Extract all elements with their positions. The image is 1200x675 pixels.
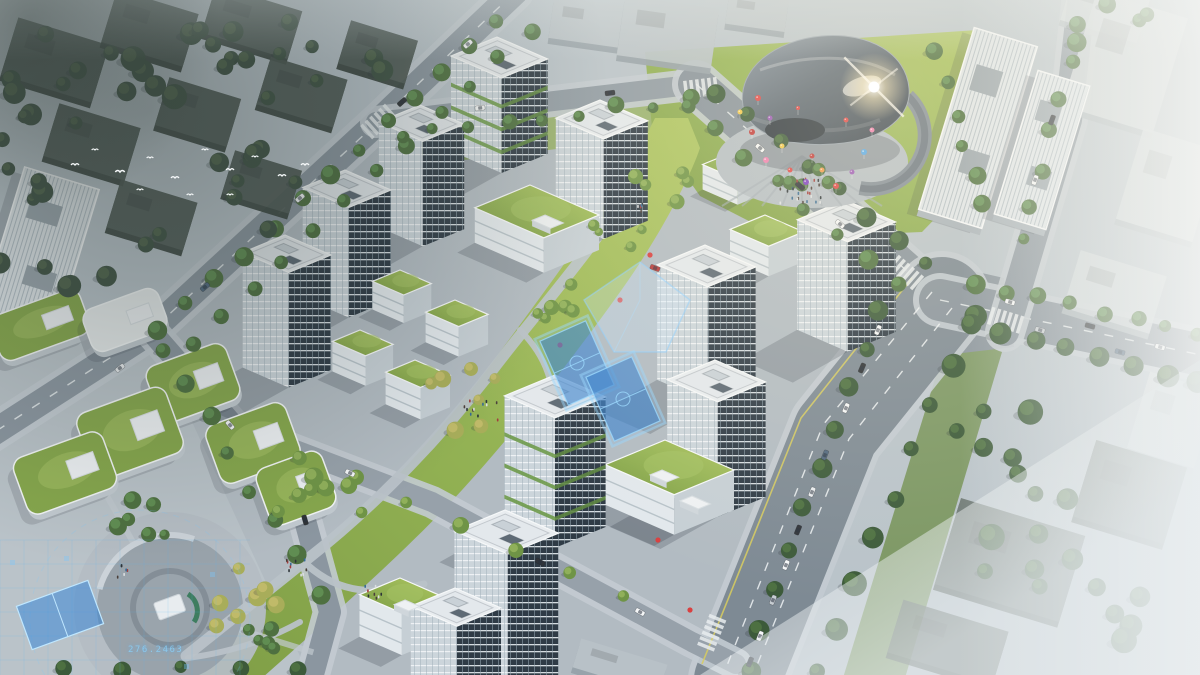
person <box>300 573 302 576</box>
person <box>304 558 306 561</box>
blueprint-tick <box>210 572 215 577</box>
person <box>123 573 125 576</box>
person <box>295 560 297 563</box>
person <box>374 593 376 596</box>
person <box>380 593 382 596</box>
person <box>378 595 380 598</box>
person <box>375 585 377 588</box>
sun-flare-layer <box>840 53 908 121</box>
person <box>302 573 304 576</box>
red-sculpture <box>687 607 692 612</box>
blueprint-tick <box>10 560 15 565</box>
person <box>367 589 369 592</box>
person <box>290 565 292 568</box>
person <box>117 576 119 579</box>
person <box>376 597 378 600</box>
blueprint-tick <box>184 664 189 669</box>
person <box>305 568 307 571</box>
person <box>368 594 370 597</box>
person <box>288 569 290 572</box>
scene-canvas <box>0 0 1200 675</box>
aerial-render: 276.2463 <box>0 0 1200 675</box>
person <box>364 585 366 588</box>
sun-flare-core <box>869 82 880 93</box>
person <box>286 559 288 562</box>
